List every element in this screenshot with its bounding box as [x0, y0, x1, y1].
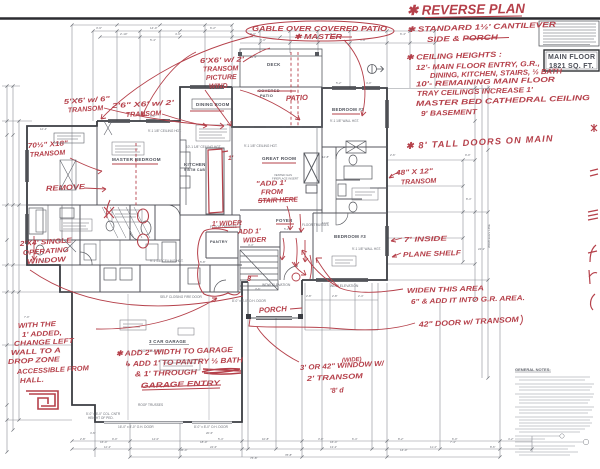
svg-text:10'-1 1/8" CEILING HGT.: 10'-1 1/8" CEILING HGT.	[186, 145, 221, 149]
svg-text:KITCHEN: KITCHEN	[184, 162, 206, 167]
svg-text:4'-0": 4'-0"	[366, 81, 372, 85]
svg-text:6'-4": 6'-4"	[352, 437, 358, 441]
svg-text:WDW ELEV LINE: WDW ELEV LINE	[487, 224, 491, 248]
svg-text:4'-2": 4'-2"	[508, 437, 514, 441]
svg-text:5'-8": 5'-8"	[200, 260, 206, 264]
svg-text:24'-2": 24'-2"	[478, 247, 485, 251]
svg-text:3'-6": 3'-6"	[255, 287, 261, 291]
svg-text:36'-4": 36'-4"	[180, 448, 188, 452]
svg-text:8'-0" x 8'-0" O.H. DOOR: 8'-0" x 8'-0" O.H. DOOR	[194, 425, 229, 429]
svg-text:2'-10": 2'-10"	[120, 32, 128, 36]
svg-text:20'-6": 20'-6"	[206, 431, 213, 435]
svg-text:✱ REVERSE PLAN: ✱ REVERSE PLAN	[407, 1, 525, 18]
svg-text:6'-2": 6'-2"	[210, 26, 216, 30]
svg-text:3'-0": 3'-0"	[42, 259, 48, 263]
svg-text:9'-1 1/8" WALL HGT.: 9'-1 1/8" WALL HGT.	[330, 119, 359, 123]
svg-text:WDW ELEVATION: WDW ELEVATION	[262, 283, 291, 287]
svg-text:8'-0": 8'-0"	[260, 38, 266, 42]
svg-text:PANTRY: PANTRY	[210, 239, 228, 244]
svg-text:WIND: WIND	[209, 83, 228, 91]
svg-text:9'-6": 9'-6"	[76, 97, 82, 101]
svg-text:1': 1'	[228, 155, 234, 162]
svg-text:6'-0": 6'-0"	[452, 437, 458, 441]
svg-text:5'-4": 5'-4"	[218, 437, 224, 441]
svg-text:3 CAR GARAGE: 3 CAR GARAGE	[149, 339, 186, 344]
svg-text:4'-4": 4'-4"	[248, 243, 254, 247]
svg-text:16'-4": 16'-4"	[100, 440, 108, 444]
svg-text:SELF CLOSING FIRE DOOR: SELF CLOSING FIRE DOOR	[160, 295, 202, 299]
svg-text:78'-8": 78'-8"	[285, 453, 292, 457]
svg-text:4'-6": 4'-6"	[175, 32, 181, 36]
svg-text:10'-8": 10'-8"	[262, 437, 269, 441]
svg-text:2'-8": 2'-8"	[80, 437, 86, 441]
svg-text:9'-1 1/8" CEILING HGT.: 9'-1 1/8" CEILING HGT.	[150, 259, 184, 263]
svg-text:STAIR HERE: STAIR HERE	[258, 197, 299, 205]
svg-text:6'-0": 6'-0"	[150, 114, 156, 118]
svg-text:5'-2": 5'-2"	[284, 227, 290, 231]
svg-text:FROM: FROM	[261, 189, 283, 197]
svg-text:14'-0": 14'-0"	[152, 437, 159, 441]
svg-text:9 BTM CAB: 9 BTM CAB	[184, 168, 205, 172]
svg-text:12'-4": 12'-4"	[40, 127, 47, 131]
svg-text:76'-8": 76'-8"	[250, 456, 258, 460]
svg-text:DINING ROOM: DINING ROOM	[196, 102, 230, 107]
svg-text:14'-0": 14'-0"	[150, 26, 158, 30]
svg-text:HEIGHT OF PED.: HEIGHT OF PED.	[88, 416, 114, 420]
svg-text:GABLE OVER COVERED PATIO: GABLE OVER COVERED PATIO	[252, 26, 388, 33]
svg-text:ADD 1': ADD 1'	[237, 228, 261, 236]
svg-text:WIDER: WIDER	[243, 237, 267, 245]
svg-text:18'-0": 18'-0"	[200, 440, 208, 444]
svg-text:9'-0": 9'-0"	[465, 153, 471, 157]
svg-text:9'-1 1/8" WALL HGT.: 9'-1 1/8" WALL HGT.	[352, 247, 381, 251]
svg-text:PICTURE: PICTURE	[206, 74, 237, 82]
svg-text:6'-4": 6'-4"	[400, 32, 406, 36]
svg-text:3'-0": 3'-0"	[318, 437, 324, 441]
svg-text:12'-8": 12'-8"	[322, 155, 329, 159]
svg-text:8'-4": 8'-4"	[466, 197, 472, 201]
svg-text:8'-2": 8'-2"	[398, 437, 404, 441]
svg-text:8'-0" x 8'-0" O.H. DOOR: 8'-0" x 8'-0" O.H. DOOR	[232, 299, 267, 303]
svg-text:2'-6": 2'-6"	[390, 153, 396, 157]
svg-text:11'-4": 11'-4"	[430, 445, 437, 449]
svg-text:GREAT ROOM: GREAT ROOM	[262, 156, 296, 161]
svg-text:BEDROOM #2: BEDROOM #2	[332, 107, 364, 112]
svg-text:'8' d: '8' d	[330, 385, 345, 395]
svg-text:9'-0": 9'-0"	[112, 437, 118, 441]
svg-text:7'-0": 7'-0"	[24, 315, 30, 319]
svg-text:14'-0": 14'-0"	[400, 448, 408, 452]
svg-text:BEDROOM #3: BEDROOM #3	[334, 234, 366, 239]
svg-text:16'-4": 16'-4"	[330, 440, 338, 444]
svg-text:2'-8": 2'-8"	[332, 294, 338, 298]
svg-text:16'-0" x 8'-0" O.H. DOOR: 16'-0" x 8'-0" O.H. DOOR	[118, 425, 154, 429]
svg-text:14'-6": 14'-6"	[250, 55, 257, 59]
svg-text:HALL.: HALL.	[20, 377, 44, 385]
svg-text:9'-1 1/8" CEILING HGT.: 9'-1 1/8" CEILING HGT.	[244, 144, 278, 148]
svg-text:"ADD 1': "ADD 1'	[256, 180, 287, 188]
svg-text:2'-8": 2'-8"	[306, 294, 312, 298]
svg-text:MAIN FLOOR: MAIN FLOOR	[548, 54, 595, 61]
svg-text:9'-1 1/8" CEILING HGT.: 9'-1 1/8" CEILING HGT.	[148, 129, 182, 133]
svg-text:11'-6": 11'-6"	[322, 221, 329, 225]
svg-text:GENERAL NOTES:: GENERAL NOTES:	[515, 367, 551, 372]
svg-text:TRANSOM: TRANSOM	[203, 65, 239, 73]
svg-text:2'-4": 2'-4"	[358, 294, 364, 298]
svg-text:PATIO: PATIO	[286, 93, 309, 103]
svg-text:DECK: DECK	[267, 62, 281, 67]
svg-text:3'-6": 3'-6"	[96, 26, 102, 30]
svg-text:13'-2": 13'-2"	[330, 445, 337, 449]
svg-text:12'-2": 12'-2"	[104, 445, 111, 449]
svg-text:5'-2": 5'-2"	[336, 81, 342, 85]
svg-text:5'-4": 5'-4"	[150, 38, 156, 42]
svg-text:24'-6": 24'-6"	[210, 445, 217, 449]
svg-text:ROOF TRUSSES: ROOF TRUSSES	[138, 403, 163, 407]
svg-text:4'-6": 4'-6"	[90, 431, 96, 435]
svg-text:8'-6": 8'-6"	[490, 445, 496, 449]
